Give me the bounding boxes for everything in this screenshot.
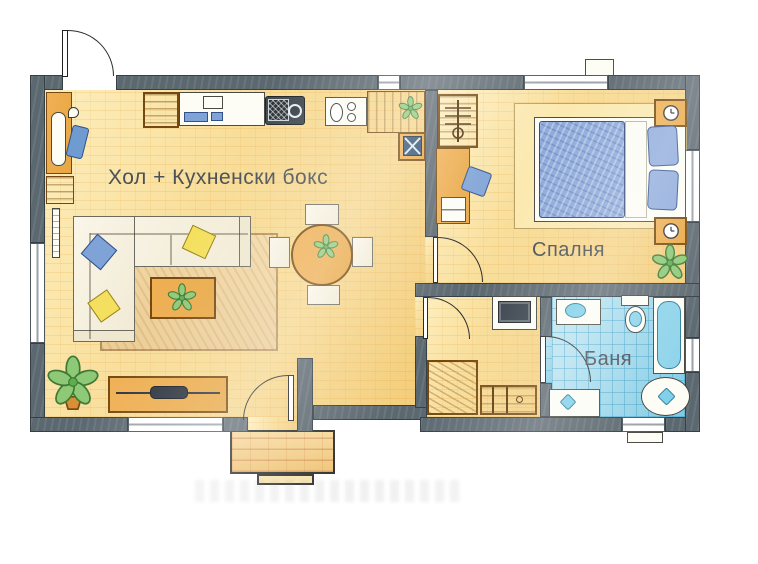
clock-icon: [662, 104, 680, 122]
plant-icon: [398, 96, 423, 121]
stove-burner-1: [347, 102, 356, 111]
plant-icon: [651, 244, 689, 282]
window-bedroom-right: [685, 150, 700, 222]
standing-mirror: [51, 112, 66, 166]
potted-plant-icon: [48, 360, 98, 414]
bathtub-basin: [657, 301, 681, 369]
bed-pillow-2: [647, 169, 679, 211]
kitchen-small-cabinet: [203, 96, 223, 109]
bed-duvet: [539, 121, 625, 218]
stove-oval-burner: [330, 103, 343, 122]
bathroom-label: Баня: [584, 348, 632, 371]
dresser-handle: [516, 396, 523, 403]
window-living-left: [30, 243, 45, 343]
sofa-seam-h: [90, 233, 248, 235]
window-living-bottom: [128, 417, 223, 432]
radiator: [52, 208, 60, 258]
coat-hook-icon: [68, 107, 79, 118]
bed-pillow-1: [647, 125, 679, 167]
dining-chair-top: [305, 204, 339, 225]
cooktop-grill: [268, 99, 289, 121]
sofa-armrest-right: [239, 216, 251, 267]
kitchen-appliance: [143, 92, 179, 128]
window-bedroom-top: [524, 75, 608, 90]
window-top-small: [378, 75, 400, 90]
x-mark-icon: [403, 136, 422, 156]
clothes-rail-icon: [441, 97, 475, 145]
sofa-armrest-bottom: [73, 330, 135, 342]
floor-plan: Хол + Кухненски бокс Спалня Баня: [0, 0, 758, 564]
sofa-cushion-divider-1: [170, 235, 172, 265]
bedroom-label: Спалня: [532, 239, 605, 262]
dining-chair-right: [352, 237, 373, 267]
wall-hall-bath-top: [540, 297, 552, 337]
terrace-door-leaf: [288, 375, 294, 421]
stove-burner-2: [347, 113, 356, 122]
living-kitchen-label: Хол + Кухненски бокс: [108, 166, 328, 190]
wall-right-1: [685, 75, 700, 150]
wall-left-1: [30, 75, 45, 243]
exterior-sill-top: [585, 59, 614, 76]
kitchen-sink-basin: [184, 112, 208, 122]
wall-inset-bottom: [313, 405, 427, 420]
hall-wardrobe: [427, 360, 478, 415]
cooktop-burner: [288, 104, 302, 118]
vanity-sink: [565, 303, 586, 318]
tv-screen: [150, 386, 188, 399]
dresser-divider-1: [492, 387, 494, 413]
entrance-door-swing: [68, 30, 114, 76]
wall-top-3: [400, 75, 524, 90]
plant-icon: [167, 283, 197, 313]
laptop: [441, 197, 466, 222]
dresser-divider-2: [506, 387, 508, 413]
hall-dresser: [480, 385, 537, 415]
wall-bedroom-bath: [415, 283, 700, 297]
wall-stub-terrace: [297, 358, 313, 432]
kitchen-small-basin: [211, 112, 223, 121]
exterior-sill-bath: [627, 432, 663, 443]
wall-bottom-3: [420, 417, 622, 432]
shoe-cabinet: [46, 176, 74, 204]
window-bath-bottom: [622, 417, 665, 432]
clock-icon: [662, 222, 680, 240]
plant-icon: [313, 234, 339, 260]
toilet-tank: [621, 295, 649, 306]
toilet-seat: [629, 311, 642, 327]
wall-hall-left: [415, 336, 427, 408]
dining-chair-bottom: [307, 285, 340, 305]
window-bath-right: [685, 338, 700, 372]
bed-sheet-fold: [625, 121, 647, 218]
dining-chair-left: [269, 237, 290, 268]
watermark-faint: [195, 480, 465, 502]
wall-top-2: [116, 75, 378, 90]
terrace: [230, 430, 335, 474]
wall-bottom-1: [30, 417, 128, 432]
washing-machine-lid: [498, 301, 531, 323]
